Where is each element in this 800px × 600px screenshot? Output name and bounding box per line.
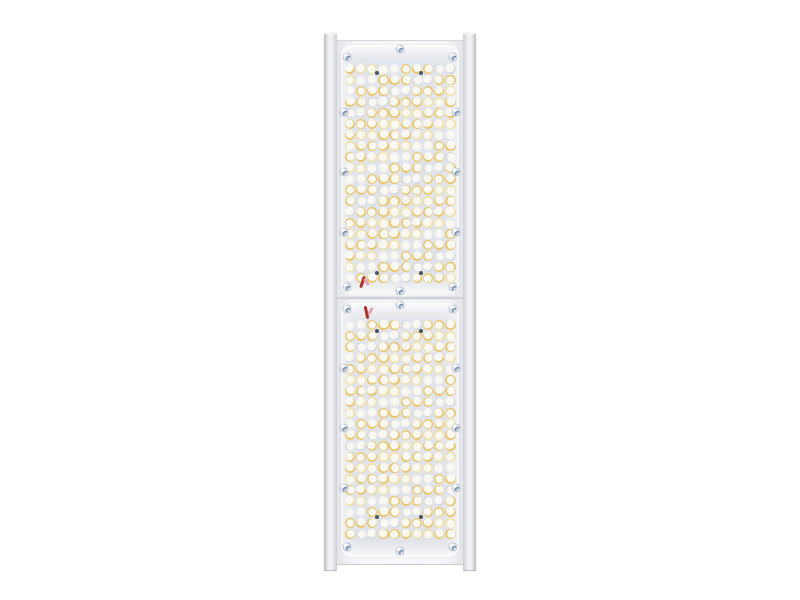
led-lens	[445, 529, 455, 539]
led-lens	[389, 64, 399, 74]
led-lens	[389, 174, 399, 184]
screw	[343, 53, 351, 61]
led-lens	[378, 375, 388, 385]
led-lens	[389, 262, 399, 272]
led-lens	[401, 75, 411, 85]
led-lens	[389, 141, 399, 151]
screw	[340, 168, 348, 176]
led-lens	[389, 474, 399, 484]
led-lens	[378, 86, 388, 96]
led-lens	[378, 430, 388, 440]
led-lens	[445, 518, 455, 528]
led-lens	[401, 386, 411, 396]
led-lens	[401, 452, 411, 462]
led-lens	[445, 240, 455, 250]
led-lens	[389, 251, 399, 261]
led-lens	[445, 496, 455, 506]
led-lens	[401, 207, 411, 217]
screw	[452, 108, 460, 116]
led-lens	[389, 496, 399, 506]
led-lens	[401, 240, 411, 250]
led-lens	[389, 518, 399, 528]
led-lens	[378, 75, 388, 85]
led-lens	[401, 229, 411, 239]
led-lens	[445, 273, 455, 283]
screw	[452, 484, 460, 492]
led-lens	[378, 353, 388, 363]
led-lens	[378, 441, 388, 451]
led-lens	[401, 86, 411, 96]
led-lens	[389, 218, 399, 228]
led-lens	[378, 152, 388, 162]
led-lens	[389, 152, 399, 162]
led-lens	[401, 141, 411, 151]
screw	[343, 283, 351, 291]
led-lens	[389, 229, 399, 239]
screw	[343, 543, 351, 551]
led-lens	[389, 75, 399, 85]
led-lens	[378, 229, 388, 239]
product-photo	[0, 0, 800, 600]
led-lens	[445, 262, 455, 272]
led-lens	[378, 207, 388, 217]
board-screw-dot	[375, 271, 379, 275]
screw	[449, 543, 457, 551]
screw	[452, 364, 460, 372]
led-lens	[378, 185, 388, 195]
led-lens	[389, 320, 399, 330]
led-lens	[378, 419, 388, 429]
led-lens	[401, 485, 411, 495]
led-lens	[401, 342, 411, 352]
led-lens	[389, 386, 399, 396]
led-lens	[389, 196, 399, 206]
led-lens	[389, 130, 399, 140]
led-lens	[378, 262, 388, 272]
led-lens	[389, 240, 399, 250]
led-lens	[378, 364, 388, 374]
led-lens	[389, 452, 399, 462]
led-lens	[389, 353, 399, 363]
led-lens	[378, 452, 388, 462]
led-lens	[389, 419, 399, 429]
screw	[340, 108, 348, 116]
led-lens	[401, 218, 411, 228]
led-lens	[401, 273, 411, 283]
led-lens	[378, 273, 388, 283]
led-lens	[401, 463, 411, 473]
led-lens	[401, 397, 411, 407]
led-lens	[445, 196, 455, 206]
led-lens	[445, 86, 455, 96]
led-lens	[401, 507, 411, 517]
led-lens	[389, 364, 399, 374]
led-lens	[445, 185, 455, 195]
led-lens	[445, 75, 455, 85]
led-lens	[389, 430, 399, 440]
led-lens	[445, 375, 455, 385]
led-lens	[445, 342, 455, 352]
screw	[449, 305, 457, 313]
led-lens	[378, 518, 388, 528]
board-screw-dot	[419, 329, 423, 333]
board-screw-dot	[419, 71, 423, 75]
led-lens	[445, 207, 455, 217]
led-lens	[445, 452, 455, 462]
led-lens	[378, 174, 388, 184]
led-lens	[389, 97, 399, 107]
screw	[396, 547, 404, 555]
led-lens	[401, 196, 411, 206]
screw	[340, 364, 348, 372]
led-lens	[401, 331, 411, 341]
led-lens	[401, 353, 411, 363]
led-lens	[401, 130, 411, 140]
led-lens	[445, 441, 455, 451]
led-lens	[445, 320, 455, 330]
screw	[452, 424, 460, 432]
led-lens	[389, 331, 399, 341]
screw	[340, 228, 348, 236]
led-lens	[445, 251, 455, 261]
led-lens	[378, 141, 388, 151]
led-lens	[378, 196, 388, 206]
led-lens	[445, 463, 455, 473]
led-lens	[445, 152, 455, 162]
led-lens	[389, 207, 399, 217]
led-lens	[445, 507, 455, 517]
right-mounting-rail	[463, 33, 476, 571]
screw	[452, 168, 460, 176]
led-lens	[378, 218, 388, 228]
led-lens	[445, 386, 455, 396]
led-lens	[401, 375, 411, 385]
led-lens	[401, 408, 411, 418]
led-lens	[378, 397, 388, 407]
led-lens	[389, 342, 399, 352]
led-lens	[445, 408, 455, 418]
led-lens	[401, 419, 411, 429]
led-lens	[445, 64, 455, 74]
screw	[340, 424, 348, 432]
screw	[449, 283, 457, 291]
led-lens	[445, 119, 455, 129]
screw	[396, 45, 404, 53]
led-lens	[401, 262, 411, 272]
led-lens	[389, 529, 399, 539]
led-lens	[389, 463, 399, 473]
led-lens	[445, 397, 455, 407]
led-lens	[378, 463, 388, 473]
led-lens	[401, 163, 411, 173]
led-lens	[401, 152, 411, 162]
led-lens	[378, 342, 388, 352]
led-lens	[389, 441, 399, 451]
led-lens	[401, 430, 411, 440]
screw	[396, 301, 404, 309]
led-lens	[401, 119, 411, 129]
led-lens	[378, 108, 388, 118]
led-lens	[401, 251, 411, 261]
module-seam	[337, 296, 463, 300]
led-lens	[401, 320, 411, 330]
led-lens	[445, 97, 455, 107]
screw	[452, 228, 460, 236]
board-screw-dot	[419, 271, 423, 275]
led-lens	[401, 364, 411, 374]
led-lens	[378, 507, 388, 517]
board-screw-dot	[419, 515, 423, 519]
screw	[396, 287, 404, 295]
led-lens	[378, 130, 388, 140]
led-lens	[378, 163, 388, 173]
led-lens	[378, 496, 388, 506]
led-lens	[445, 353, 455, 363]
led-lens	[401, 441, 411, 451]
left-mounting-rail	[324, 33, 337, 571]
led-lens	[389, 185, 399, 195]
led-lens	[401, 529, 411, 539]
led-lens	[401, 108, 411, 118]
screw	[449, 53, 457, 61]
led-lens	[401, 64, 411, 74]
led-lens	[389, 273, 399, 283]
board-screw-dot	[375, 329, 379, 333]
led-lens	[378, 331, 388, 341]
led-lens	[378, 320, 388, 330]
led-lens	[378, 474, 388, 484]
led-lens	[389, 163, 399, 173]
led-lens	[445, 130, 455, 140]
screw	[343, 305, 351, 313]
led-lens	[378, 529, 388, 539]
led-lens	[401, 97, 411, 107]
led-lens	[378, 97, 388, 107]
led-lens	[389, 119, 399, 129]
led-lens	[378, 386, 388, 396]
board-screw-dot	[375, 515, 379, 519]
led-lens	[389, 408, 399, 418]
led-lens	[389, 507, 399, 517]
led-lens	[401, 518, 411, 528]
led-lens	[378, 485, 388, 495]
led-lens	[389, 108, 399, 118]
led-lens	[389, 375, 399, 385]
led-lens	[389, 485, 399, 495]
led-lens	[401, 185, 411, 195]
led-lens	[445, 218, 455, 228]
led-lens	[401, 496, 411, 506]
led-lens	[401, 474, 411, 484]
led-lens	[378, 64, 388, 74]
led-lens	[445, 331, 455, 341]
led-lens	[401, 174, 411, 184]
led-lens	[378, 119, 388, 129]
led-lens	[445, 141, 455, 151]
board-screw-dot	[375, 71, 379, 75]
led-lens	[445, 474, 455, 484]
led-lens	[378, 408, 388, 418]
led-lens	[389, 397, 399, 407]
led-lens	[389, 86, 399, 96]
screw	[340, 484, 348, 492]
led-lens	[378, 251, 388, 261]
led-lens	[378, 240, 388, 250]
